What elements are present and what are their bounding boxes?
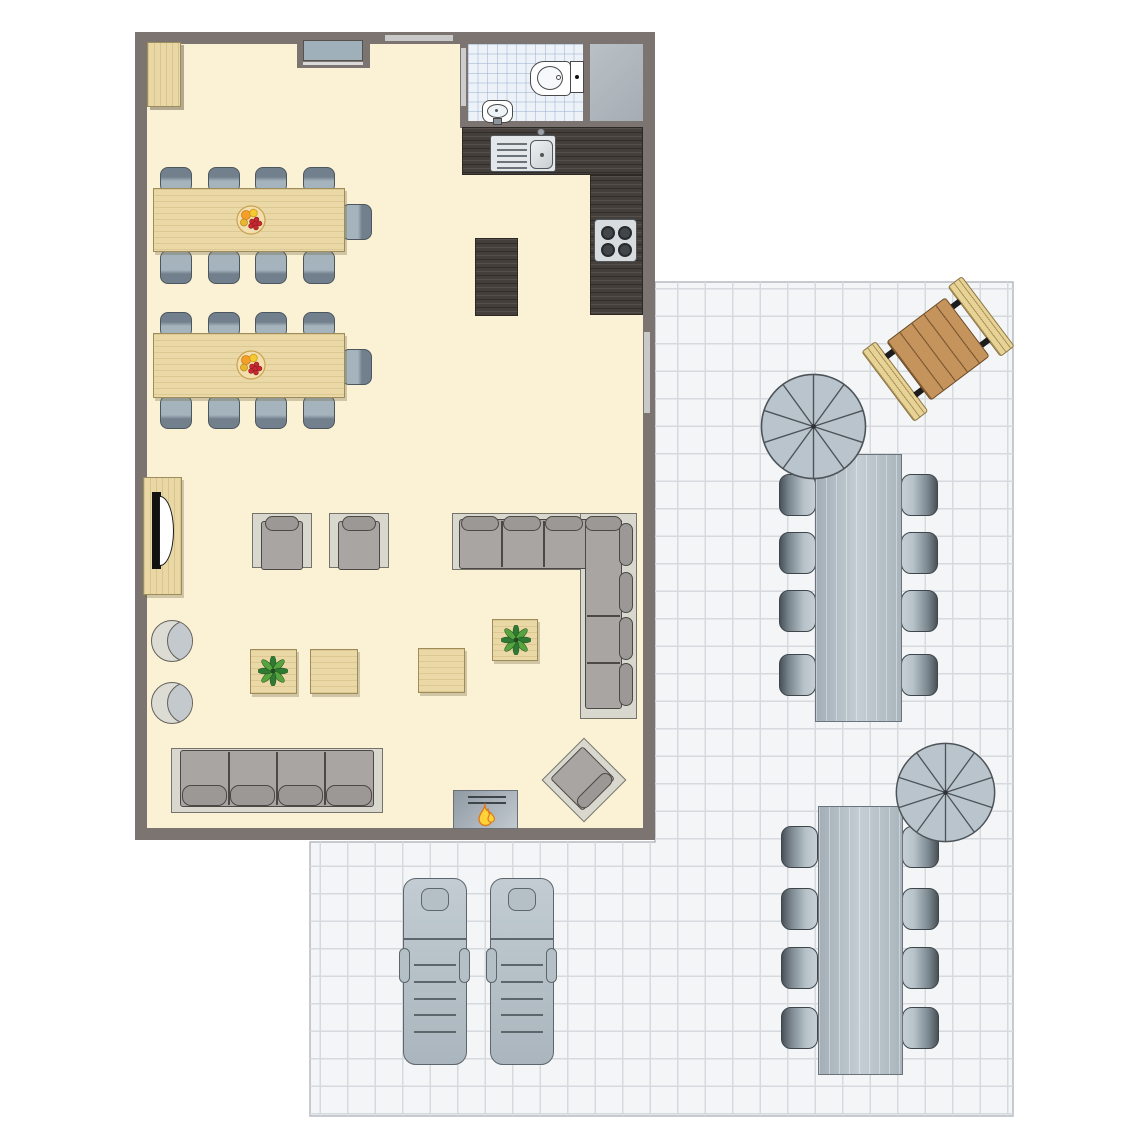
pouf-shade [167,620,193,662]
lounger-slat [414,1031,456,1033]
dining-chair-end[interactable] [341,204,372,240]
lounger-slat [501,998,543,1000]
toilet-flush-button[interactable] [575,75,579,79]
outdoor-chair[interactable] [781,947,818,989]
fireplace[interactable] [453,790,518,829]
stove-burner [601,226,615,240]
parasol[interactable] [894,741,997,844]
potted-plant [501,625,531,655]
outdoor-chair[interactable] [779,532,816,574]
sofa-back-cushion [619,663,633,706]
washbasin-faucet [493,118,502,125]
sink-faucet [537,128,545,136]
niche-sill [303,62,363,65]
sofa-back-cushion [619,523,633,566]
bathroom-wall-right [583,44,590,121]
fruit-bowl[interactable] [236,350,266,380]
niche-panel [303,40,363,61]
outdoor-chair[interactable] [901,590,938,632]
kitchen-island[interactable] [475,238,518,316]
tv-screen [159,496,174,566]
dining-chair[interactable] [160,395,192,429]
flame-icon [475,802,497,828]
window-right-wall [644,332,650,413]
outdoor-chair[interactable] [779,590,816,632]
washbasin-drain [495,109,498,112]
lounger-slat [501,981,543,983]
lounger-slat [501,1031,543,1033]
potted-plant [258,656,288,686]
toilet-tank [570,61,584,93]
bathroom-washbasin[interactable] [482,100,513,123]
dining-chair-end[interactable] [341,349,372,385]
drainer-groove [497,155,527,157]
outdoor-chair[interactable] [781,1007,818,1049]
coffee-table[interactable] [310,649,358,694]
sofa-back-cushion [230,785,275,806]
sofa-back-cushion [545,516,583,531]
outdoor-chair[interactable] [781,888,818,930]
lounger-armrest [546,948,557,983]
lounger-slat [414,998,456,1000]
lounger-armrest [486,948,497,983]
stove-burner [601,243,615,257]
sofa-back-cushion [503,516,541,531]
lounger-slat [501,964,543,966]
lounger-slat [414,964,456,966]
outdoor-chair[interactable] [781,826,818,868]
outdoor-dining-table[interactable] [815,454,902,722]
dining-chair[interactable] [255,395,287,429]
outdoor-chair[interactable] [902,888,939,930]
armchair-back-cushion [265,516,299,531]
fruit-bowl[interactable] [236,205,266,235]
lounger-divider [404,938,466,940]
dining-chair[interactable] [255,250,287,284]
lounger-pillow [421,888,449,911]
tv-cabinet[interactable] [143,477,182,595]
floor-plan-canvas [0,0,1145,1145]
lounger-armrest [459,948,470,983]
outdoor-chair[interactable] [779,654,816,696]
dining-chair[interactable] [160,250,192,284]
corner-cabinet[interactable] [147,42,181,107]
pouf[interactable] [151,682,193,724]
shower[interactable] [590,44,643,121]
dining-chair[interactable] [303,395,335,429]
drainer-groove [497,149,527,151]
dining-chair[interactable] [303,250,335,284]
toilet-bowl[interactable] [530,61,571,96]
drainer-groove [497,167,527,169]
coffee-table[interactable] [418,648,465,693]
fireplace-vent [468,796,506,798]
drainer-groove [497,161,527,163]
sofa-back-cushion [182,785,227,806]
sofa-back-cushion [278,785,323,806]
dining-chair[interactable] [208,395,240,429]
dining-chair[interactable] [208,250,240,284]
lounger-armrest [399,948,410,983]
sofa-back-cushion [326,785,372,806]
outdoor-chair[interactable] [901,474,938,516]
lounger-slat [501,1014,543,1016]
lounger-slat [414,1014,456,1016]
sofa-back-cushion [619,572,633,613]
toilet-hinge [556,75,561,80]
outdoor-chair[interactable] [902,947,939,989]
stove[interactable] [594,219,637,262]
lounger-pillow [508,888,536,911]
sofa-back-cushion [461,516,499,531]
armchair-back-cushion [342,516,376,531]
sink-drain [540,153,544,157]
wall-niche [297,32,370,68]
sun-lounger[interactable] [490,878,554,1065]
sofa-back-cushion [619,617,633,660]
seat-divider [543,521,545,567]
stove-burner [618,243,632,257]
sun-lounger[interactable] [403,878,467,1065]
kitchen-sink[interactable] [490,135,556,172]
window-top-wall [385,35,453,41]
outdoor-chair[interactable] [901,654,938,696]
pouf[interactable] [151,620,193,662]
parasol[interactable] [759,372,868,481]
sofa-back-cushion [585,516,622,531]
seat-divider [587,615,620,617]
drainer-groove [497,143,527,145]
outdoor-chair[interactable] [902,1007,939,1049]
bathroom-door[interactable] [461,48,466,106]
outdoor-dining-table[interactable] [818,806,903,1075]
seat-divider [587,662,620,664]
lounger-slat [414,981,456,983]
corner-sofa-seats [585,519,622,709]
seat-divider [501,521,503,567]
outdoor-chair[interactable] [901,532,938,574]
pouf-shade [167,682,193,724]
lounger-divider [491,938,553,940]
stove-burner [618,226,632,240]
